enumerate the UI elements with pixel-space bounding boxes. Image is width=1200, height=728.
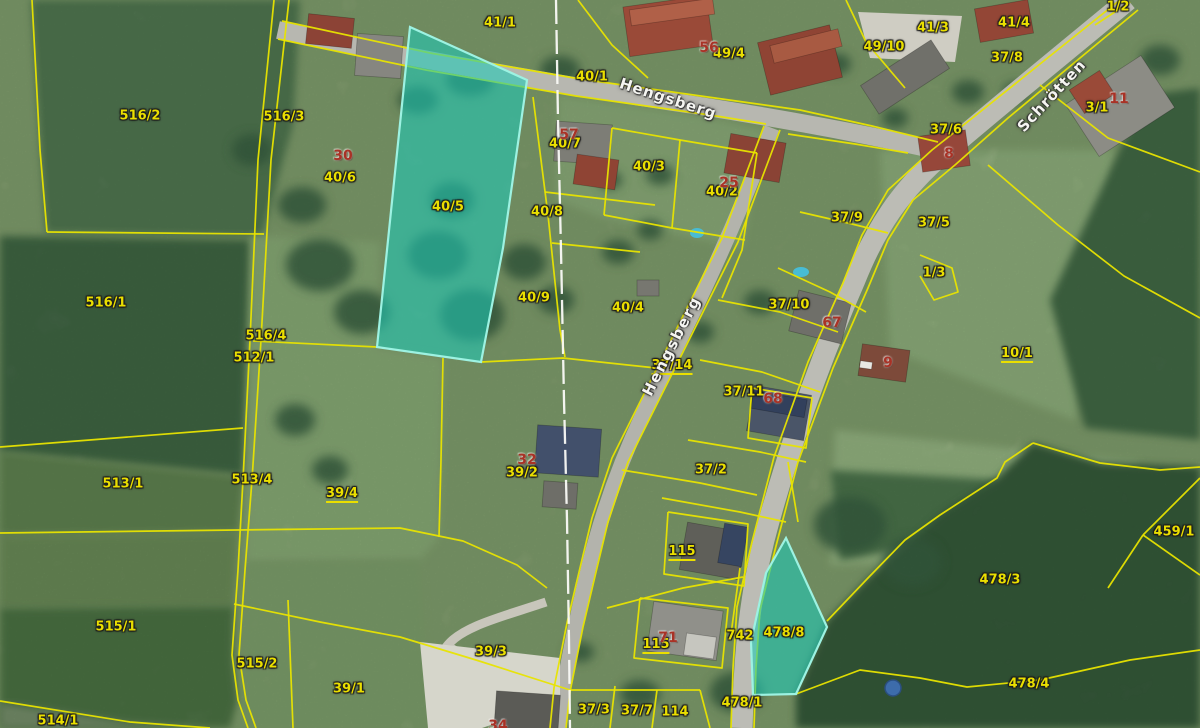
building-footprint (637, 280, 659, 296)
building-footprint (542, 481, 578, 509)
building-footprint (918, 130, 971, 172)
aerial-map-canvas[interactable]: 516/2516/340/6516/1516/4512/1513/1513/43… (0, 0, 1200, 728)
building-footprint (860, 361, 873, 370)
building-footprint (684, 633, 717, 659)
cadastral-map-overlay (0, 0, 1200, 728)
building-footprint (573, 154, 619, 190)
building-footprint (534, 425, 601, 477)
photo-grain (0, 0, 1200, 728)
